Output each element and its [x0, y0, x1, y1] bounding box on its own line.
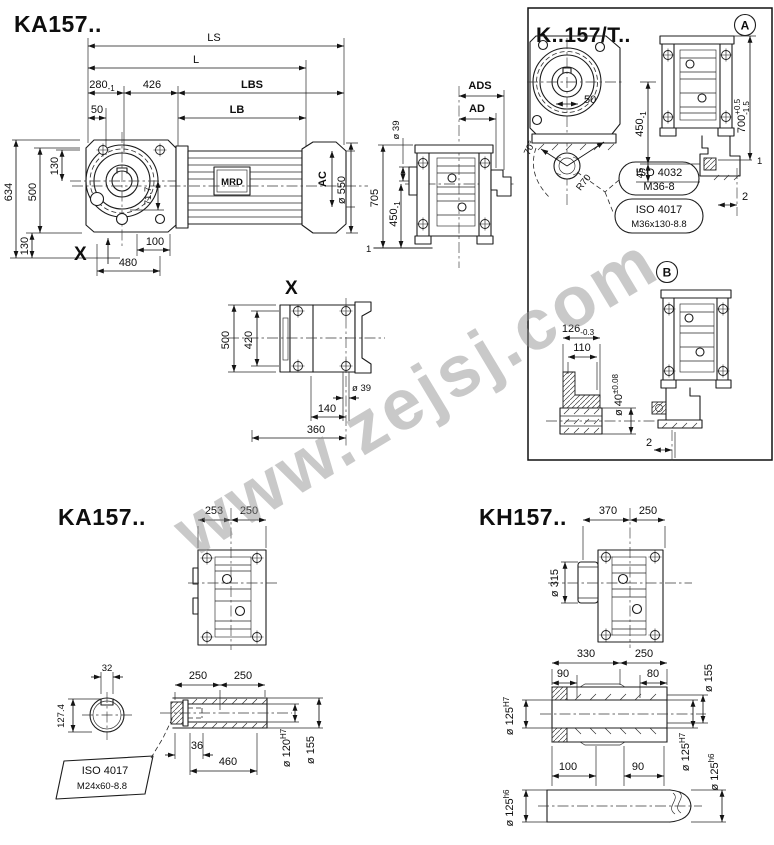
detail-badge-a: A: [741, 19, 750, 33]
view-x-title: X: [285, 278, 298, 299]
dim-R70: R70: [574, 172, 593, 193]
kh157-hollow-shaft-section: 330 250 90 80 ø 155 ø 125H7 ø 125H7: [502, 648, 715, 771]
dim-90-b: 90: [632, 761, 644, 773]
section-title-ka157-bottom: KA157..: [58, 504, 146, 530]
dim-AD: AD: [469, 103, 485, 115]
dim-100: 100: [146, 236, 164, 248]
ka157b-shaft-section: 250 250 36 460 ø 120H7 ø 155: [160, 670, 323, 775]
dim-100: 100: [559, 761, 577, 773]
input-shaft-boss: [409, 167, 417, 195]
ka157-top-section: KA157.. LS L 280-1 426 LBS 50 LB: [3, 11, 368, 276]
dim-460: 460: [219, 756, 237, 768]
callout2-line2: M36x130-8.8: [631, 219, 686, 230]
gear-housing-front: [70, 132, 180, 246]
dim-500: 500: [27, 183, 39, 201]
k157t-front-view: 50 70° R70: [522, 36, 624, 212]
dim-420: 420: [243, 331, 255, 349]
callout-line1: ISO 4017: [82, 765, 128, 777]
side-view-section: ADS AD ø 39 1 705 450-1: [366, 80, 514, 268]
kh157-section: KH157.. 370 250 ø 315 330 250 90 80: [479, 504, 726, 827]
dim-127-4: 127.4: [56, 704, 67, 728]
motor-adapter: [355, 302, 371, 373]
callout-iso4017-m24: [56, 756, 153, 799]
dim-250-kh: 250: [639, 505, 657, 517]
dim-330: 330: [577, 648, 595, 660]
callout-line2: M24x60-8.8: [77, 781, 127, 792]
dim-450-a: 450-1: [634, 111, 648, 137]
gear-unit-dimension-drawing: KA157.. LS L 280-1 426 LBS 50 LB: [0, 0, 774, 845]
dim-LB: LB: [230, 104, 245, 116]
dim-90-a: 90: [557, 668, 569, 680]
ka157b-shaft-end-view: 127.4 32: [56, 663, 133, 740]
dim-705: 705: [369, 189, 381, 207]
technical-drawing-page: KA157.. LS L 280-1 426 LBS 50 LB: [0, 0, 774, 845]
dim-50-shaft: 50: [584, 94, 596, 106]
dim-80: 80: [647, 668, 659, 680]
ref-plane-1: 1: [366, 244, 371, 255]
angle-bracket: [563, 372, 600, 408]
callout1-line2: M36-8: [643, 181, 674, 193]
kh157-solid-shaft: 100 90 ø 125h6 ø 125h6: [502, 746, 726, 827]
dim-L: L: [193, 54, 199, 66]
dim-120-h7: ø 120H7: [279, 728, 293, 767]
section-title-ka157-top: KA157..: [14, 11, 102, 37]
callout2-line1: ISO 4017: [636, 204, 682, 216]
dim-480: 480: [119, 257, 137, 269]
dim-370: 370: [599, 505, 617, 517]
dim-130-bottom: 130: [19, 237, 31, 255]
base-plate: [532, 134, 616, 143]
dim-250-b: 250: [234, 670, 252, 682]
torque-bracket: [491, 170, 511, 196]
motor-label: MRD: [221, 177, 243, 188]
dim-280: 280-1: [89, 79, 115, 93]
dim-155-kh: ø 155: [703, 664, 715, 692]
dim-40: ø 40±0.08: [611, 373, 625, 416]
dim-426: 426: [143, 79, 161, 91]
dim-125-lb-h6: ø 125h6: [502, 789, 516, 827]
dim-71-7: 71.7: [143, 187, 154, 206]
dim-125-r-h7: ø 125H7: [678, 732, 692, 771]
dim-2-b: 2: [646, 437, 652, 449]
ka157b-iso-callout: ISO 4017 M24x60-8.8: [56, 717, 173, 799]
foot-bracket: [666, 388, 700, 420]
dim-2-a: 2: [742, 191, 748, 203]
dim-LS: LS: [207, 32, 220, 44]
dim-50: 50: [91, 104, 103, 116]
dim-45: 45: [635, 168, 646, 179]
left-dimensions: 634 500 130 130 71.7: [3, 140, 164, 258]
dim-450: 450-1: [388, 201, 402, 227]
dim-550: ø 550: [336, 176, 348, 204]
dim-500-x: 500: [220, 331, 232, 349]
dim-125-l-h7: ø 125H7: [502, 696, 516, 735]
dim-36: 36: [191, 740, 203, 752]
dim-ADS: ADS: [468, 80, 491, 92]
ref-plane-1-a: 1: [757, 156, 762, 167]
dim-LBS: LBS: [241, 79, 263, 91]
break-symbol: [672, 792, 682, 814]
dim-315: ø 315: [549, 569, 561, 597]
hollow-shaft-boss: [578, 562, 598, 603]
k157t-section: K..157/T.. A 50 70° R70 ISO 4032 M36-8 I…: [522, 8, 772, 462]
dim-130-top: 130: [49, 157, 61, 175]
dim-155: ø 155: [305, 736, 317, 764]
k157t-side-view-b: 2: [646, 290, 731, 462]
dim-125-rb-h6: ø 125h6: [707, 753, 721, 791]
dim-39: ø 39: [391, 120, 402, 139]
dim-250-a: 250: [189, 670, 207, 682]
kh157-front-view: 370 250 ø 315: [548, 505, 692, 648]
dim-634: 634: [3, 183, 15, 201]
view-x-arrow-label: X: [74, 244, 87, 265]
dimension-lines: LS L 280-1 426 LBS 50 LB: [88, 32, 344, 155]
dim-250-b-kh: 250: [635, 648, 653, 660]
dim-700: 700+0.5-1.5: [733, 98, 751, 133]
dim-32: 32: [102, 663, 113, 674]
dim-AC: AC: [317, 171, 329, 187]
section-title-kh157: KH157..: [479, 504, 567, 530]
